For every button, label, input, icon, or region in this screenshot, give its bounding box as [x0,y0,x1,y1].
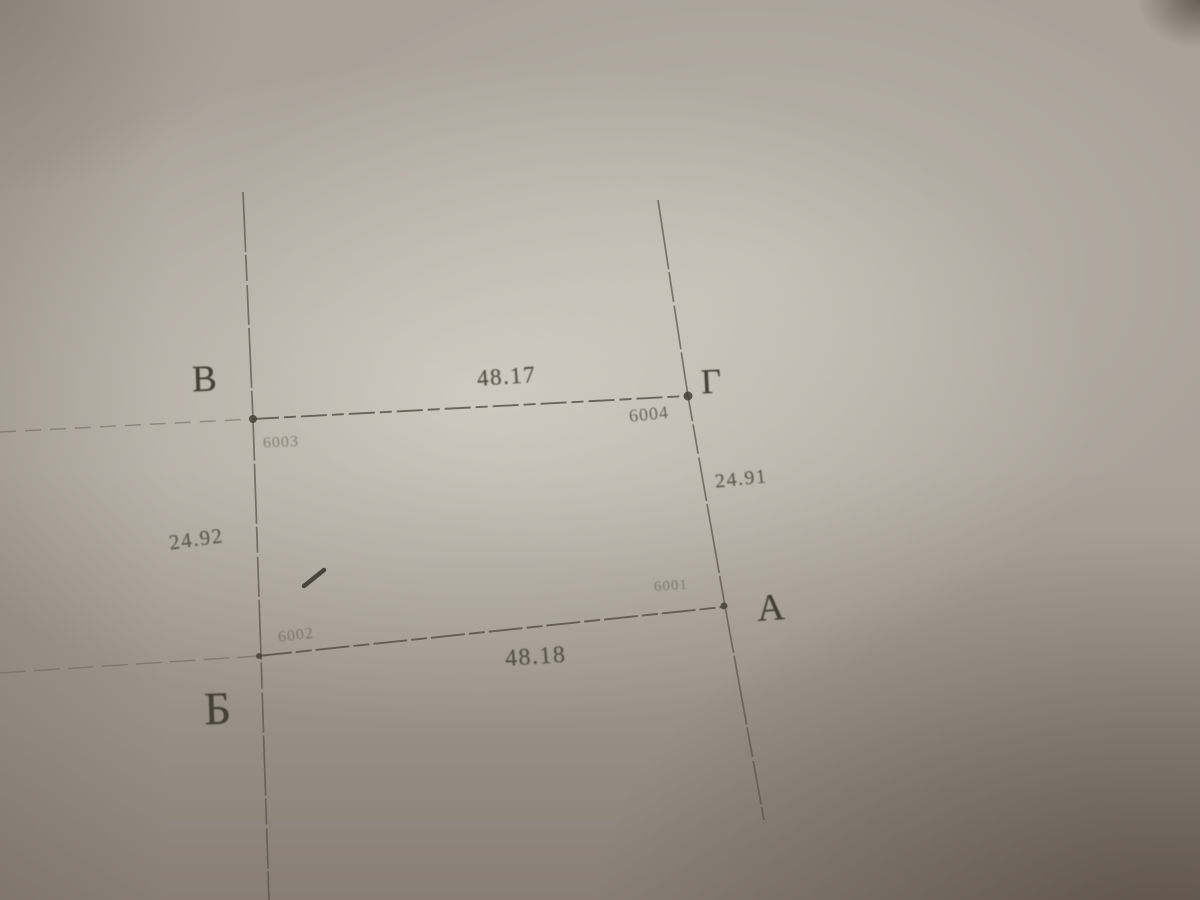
corner-letter-v: В [191,358,217,402]
point-number-6001: 6001 [653,577,688,596]
vertex-dot-v [249,415,257,423]
boundary-line-right-extended [658,200,764,820]
boundary-lines-drawing [0,0,1200,900]
extension-line-left-of-v [0,419,253,432]
corner-letter-b: Б [203,682,232,737]
point-number-6004: 6004 [628,402,670,427]
vertex-dot-b [256,653,262,659]
photo-of-survey-sketch: В Г А Б 6003 6004 6001 6002 48.17 24.91 … [0,0,1200,900]
extension-line-left-of-b [0,656,258,673]
corner-letter-a: А [755,585,785,631]
vertex-dot-a [721,603,728,610]
boundary-line-left-extended [243,192,269,900]
vertex-dot-g [684,392,693,401]
side-length-bottom: 48.18 [504,642,567,673]
edge-top-v-g [253,396,688,419]
side-length-top: 48.17 [476,362,537,392]
point-number-6003: 6003 [263,433,300,453]
corner-letter-g: Г [700,361,722,402]
edge-bottom-b-a [258,607,723,656]
pen-tick-mark [304,570,324,586]
